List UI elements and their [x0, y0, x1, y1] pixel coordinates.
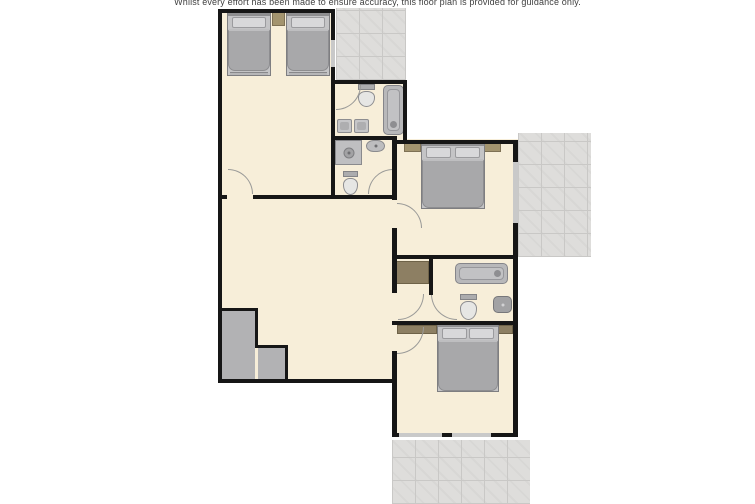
single-bed-1	[227, 11, 271, 76]
double-bed-1-part	[422, 159, 484, 208]
floor-plan	[0, 0, 755, 504]
window	[513, 162, 518, 223]
wall-segment	[331, 9, 335, 199]
toilet-3	[459, 294, 478, 320]
basin-3	[366, 140, 385, 152]
staircase	[258, 348, 285, 379]
double-bed-1	[421, 141, 485, 209]
wall-segment	[392, 321, 518, 325]
wall-segment	[392, 255, 518, 259]
basin-4	[493, 296, 512, 313]
wall-segment	[218, 9, 335, 13]
single-bed-2-part	[289, 72, 327, 75]
wall-segment	[331, 136, 397, 140]
basin-3-part	[374, 145, 377, 148]
bathtub-2	[455, 263, 508, 284]
double-bed-1-part	[455, 147, 480, 158]
wall-segment	[331, 80, 407, 84]
double-bed-2-part	[438, 340, 498, 391]
staircase	[222, 311, 255, 379]
patio-bottom	[392, 440, 530, 504]
wall-segment	[392, 136, 397, 200]
double-bed-2-part	[442, 328, 467, 339]
wall-segment	[392, 351, 397, 437]
toilet-2-part	[343, 178, 358, 195]
toilet-1-part	[358, 91, 375, 107]
single-bed-1-part	[232, 17, 266, 28]
bathtub-2-part	[494, 270, 501, 277]
double-bed-2	[437, 322, 499, 392]
bathtub-1	[383, 85, 404, 135]
wall-segment	[429, 259, 433, 295]
window	[331, 40, 335, 67]
wall-segment	[403, 80, 407, 140]
bathtub-1-part	[390, 121, 397, 128]
wall-segment	[513, 255, 518, 437]
shower-cubicle	[335, 140, 362, 165]
toilet-2-part	[343, 171, 358, 177]
bedside-table-1	[272, 11, 285, 26]
single-bed-1-part	[228, 29, 270, 71]
toilet-3-part	[460, 294, 477, 300]
wall-segment	[392, 228, 397, 293]
terrace-right	[518, 133, 591, 257]
wall-segment	[218, 379, 397, 383]
wall-segment	[392, 140, 518, 144]
single-bed-1-part	[230, 72, 268, 75]
basin-2-part	[357, 122, 366, 130]
basin-1	[337, 119, 352, 133]
cupboard	[395, 261, 429, 284]
basin-4-part	[501, 303, 504, 306]
basin-2	[354, 119, 369, 133]
stairs-edge	[255, 308, 258, 348]
stairs-edge	[255, 345, 288, 348]
window	[399, 433, 442, 437]
single-bed-2-part	[291, 17, 325, 28]
terrace-top	[336, 8, 406, 80]
floor-plan-page: Whilst every effort has been made to ens…	[0, 0, 755, 504]
double-bed-2-part	[469, 328, 494, 339]
double-bed-1-part	[426, 147, 451, 158]
wall-segment	[218, 195, 227, 199]
single-bed-2	[286, 11, 330, 76]
single-bed-2-part	[287, 29, 329, 71]
window	[452, 433, 491, 437]
wall-segment	[253, 195, 396, 199]
stairs-edge	[285, 345, 288, 379]
stairs-edge	[222, 308, 258, 311]
toilet-3-part	[460, 301, 477, 320]
toilet-2	[342, 171, 359, 195]
basin-1-part	[340, 122, 349, 130]
shower-cubicle-part	[347, 151, 350, 154]
